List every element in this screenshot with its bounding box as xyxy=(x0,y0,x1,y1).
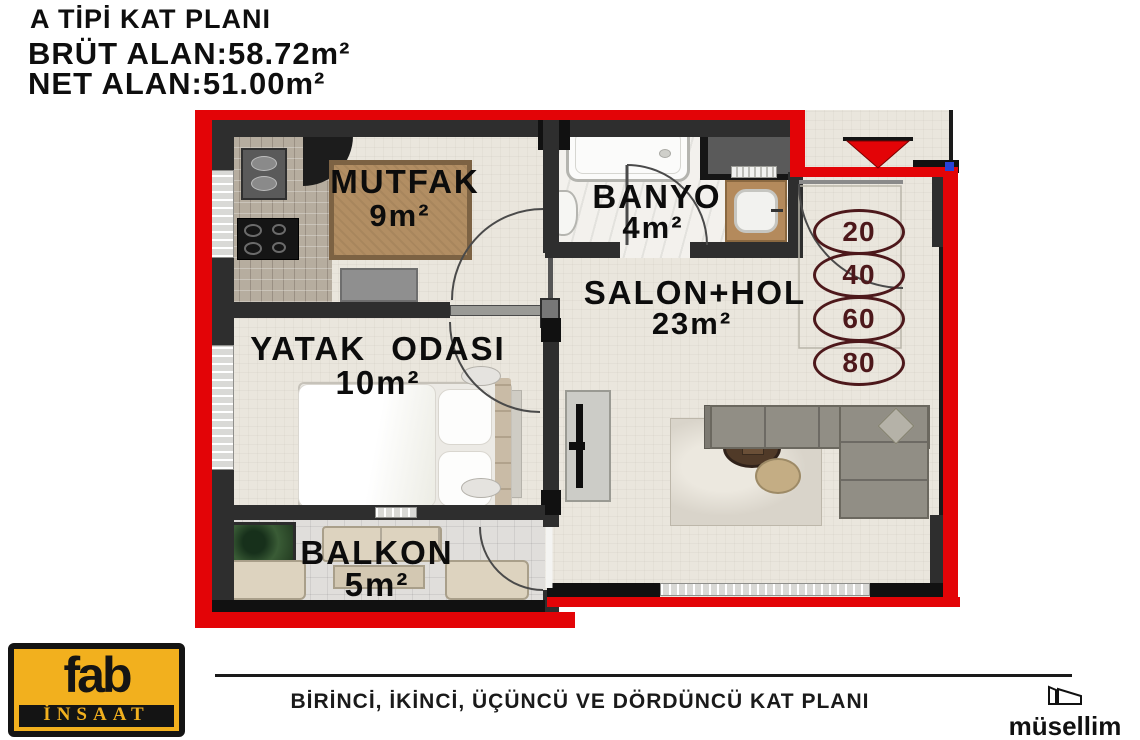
washbasin-vanity xyxy=(725,180,787,242)
faucet xyxy=(771,209,783,212)
living-area-label: 23m² xyxy=(652,308,732,339)
plan-title: A TİPİ KAT PLANI xyxy=(30,4,271,35)
wall-segment xyxy=(543,318,559,515)
musellim-icon xyxy=(1043,682,1087,708)
sink-basin xyxy=(251,176,277,191)
insaat-label: İNSAAT xyxy=(17,703,176,729)
burner xyxy=(272,242,286,253)
outer-wall-bottom xyxy=(547,597,960,607)
bed-pillow xyxy=(438,389,492,445)
badge-40: 40 xyxy=(813,252,905,298)
fab-logo-text: fab xyxy=(14,649,179,703)
nightstand xyxy=(461,478,501,498)
wall-segment xyxy=(541,318,561,342)
outer-wall-top xyxy=(195,110,805,120)
kitchen-sink xyxy=(241,148,287,200)
nightstand xyxy=(461,366,501,386)
outer-wall-left xyxy=(195,110,212,628)
wall-segment xyxy=(545,242,620,258)
window-living xyxy=(660,583,870,596)
stove xyxy=(237,218,299,260)
bathroom-area-label: 4m² xyxy=(622,212,683,243)
burner xyxy=(244,224,262,237)
wall-segment xyxy=(543,515,559,527)
window-balcony xyxy=(375,507,417,518)
page: A TİPİ KAT PLANI BRÜT ALAN:58.72m² NET A… xyxy=(0,0,1140,740)
kitchen-label: MUTFAK xyxy=(330,165,479,198)
outer-wall-entry-jog xyxy=(790,110,805,174)
wall-segment xyxy=(788,172,803,258)
tv-mount xyxy=(569,442,585,450)
badge-80: 80 xyxy=(813,340,905,386)
bathroom-label: BANYO xyxy=(592,180,721,213)
wall-segment xyxy=(212,120,795,137)
musellim-logo: müsellim xyxy=(995,682,1135,740)
floor-plan: MUTFAK 9m² BANYO 4m² SALON+HOL 23m² YATA… xyxy=(195,110,960,632)
fab-logo: fab İNSAAT xyxy=(8,643,185,737)
bed-duvet xyxy=(298,384,436,508)
wall-segment xyxy=(212,302,450,318)
net-area-label: NET ALAN:51.00m² xyxy=(28,66,325,102)
wall-segment xyxy=(930,515,944,583)
balcony-armchair-left xyxy=(222,560,306,600)
outer-wall-entry xyxy=(790,167,958,177)
living-label: SALON+HOL xyxy=(584,276,806,309)
badge-20: 20 xyxy=(813,209,905,255)
wall-segment xyxy=(547,583,660,597)
wall-segment xyxy=(548,253,553,298)
bedroom-area-label: 10m² xyxy=(335,366,420,399)
blue-marker xyxy=(945,162,954,171)
wall-segment xyxy=(690,242,795,258)
badge-60: 60 xyxy=(813,296,905,342)
balcony-area-label: 5m² xyxy=(345,568,410,601)
footer-divider xyxy=(215,674,1072,677)
towel-rack xyxy=(731,166,777,178)
outer-wall-right xyxy=(943,170,958,607)
floor-caption: BİRİNCİ, İKİNCİ, ÜÇÜNCÜ VE DÖRDÜNCÜ KAT … xyxy=(230,690,930,714)
outer-wall-balcony-bottom xyxy=(195,612,575,628)
wall-segment xyxy=(870,583,943,597)
door-leaf-kitchen xyxy=(450,305,543,316)
bathtub-drain xyxy=(659,149,671,158)
side-table xyxy=(755,458,801,494)
tv-unit xyxy=(565,390,611,502)
balcony-label: BALKON xyxy=(300,536,453,569)
musellim-label: müsellim xyxy=(995,711,1135,740)
balcony-armchair-right xyxy=(445,560,529,600)
kitchen-area-label: 9m² xyxy=(369,200,430,231)
wall-segment xyxy=(949,110,953,167)
burner xyxy=(272,224,286,235)
bedroom-label: YATAK ODASI xyxy=(250,332,505,365)
burner xyxy=(244,242,262,255)
wall-segment xyxy=(543,120,559,253)
kitchen-counter xyxy=(340,268,418,302)
sink-basin xyxy=(251,156,277,171)
